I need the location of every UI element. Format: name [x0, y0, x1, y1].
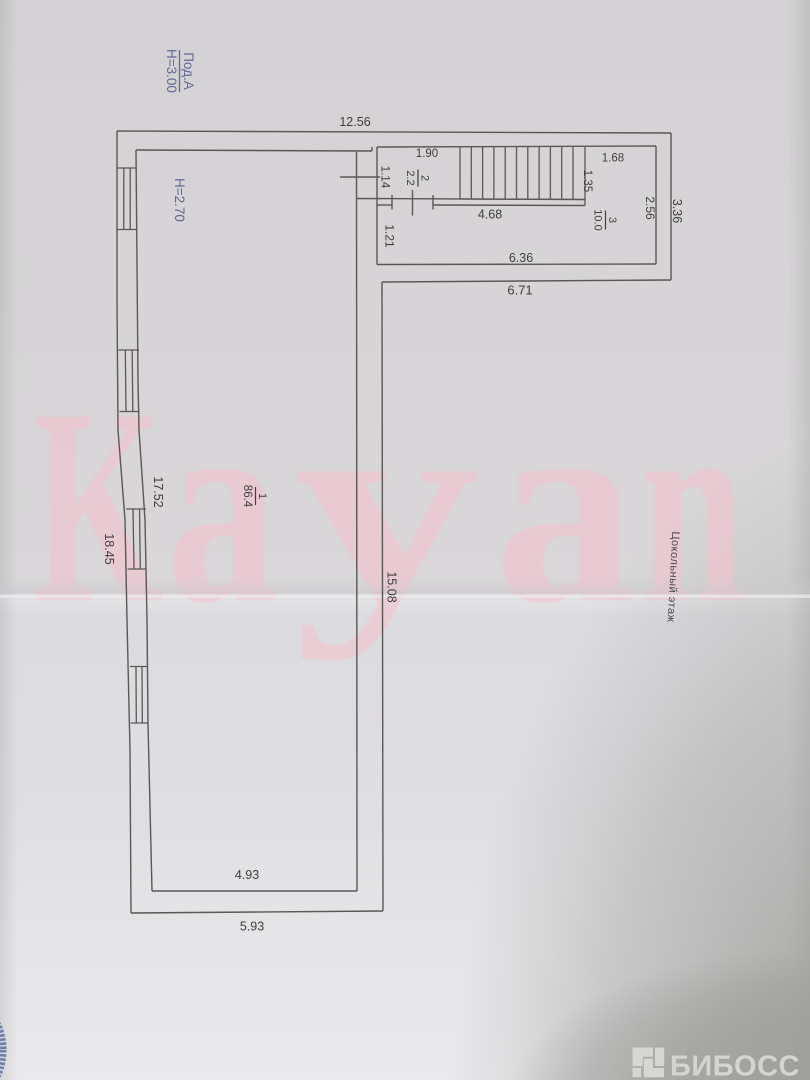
svg-text:2.2: 2.2 — [404, 170, 416, 185]
svg-text:2.56: 2.56 — [643, 196, 657, 220]
svg-text:n: n — [641, 350, 745, 661]
svg-text:5.93: 5.93 — [240, 920, 264, 934]
svg-text:86.4: 86.4 — [241, 485, 253, 508]
svg-text:18.45: 18.45 — [102, 533, 116, 564]
svg-text:1.14: 1.14 — [379, 166, 391, 189]
svg-text:12.56: 12.56 — [339, 115, 370, 129]
svg-text:17.52: 17.52 — [151, 476, 165, 507]
svg-text:4.93: 4.93 — [235, 868, 259, 882]
svg-text:1.21: 1.21 — [383, 224, 397, 248]
svg-text:Н=3.00: Н=3.00 — [164, 49, 179, 93]
svg-text:1.35: 1.35 — [581, 170, 593, 192]
svg-text:1: 1 — [256, 493, 268, 499]
svg-text:Под.А: Под.А — [181, 52, 196, 90]
svg-text:a: a — [494, 350, 636, 661]
svg-text:a: a — [166, 350, 278, 661]
svg-text:2: 2 — [419, 175, 431, 181]
svg-text:3.36: 3.36 — [670, 199, 684, 223]
svg-text:4.68: 4.68 — [478, 208, 502, 222]
svg-text:6.36: 6.36 — [509, 251, 533, 265]
svg-text:6.71: 6.71 — [507, 283, 532, 298]
svg-text:15.08: 15.08 — [385, 571, 399, 602]
svg-text:1.90: 1.90 — [416, 148, 438, 160]
svg-text:Н=2.70: Н=2.70 — [172, 178, 187, 222]
svg-text:1.68: 1.68 — [602, 153, 624, 165]
svg-text:3: 3 — [606, 217, 618, 223]
svg-text:БИБОСС: БИБОСС — [670, 1051, 800, 1080]
svg-text:y: y — [293, 350, 481, 661]
svg-text:10.0: 10.0 — [592, 209, 604, 230]
